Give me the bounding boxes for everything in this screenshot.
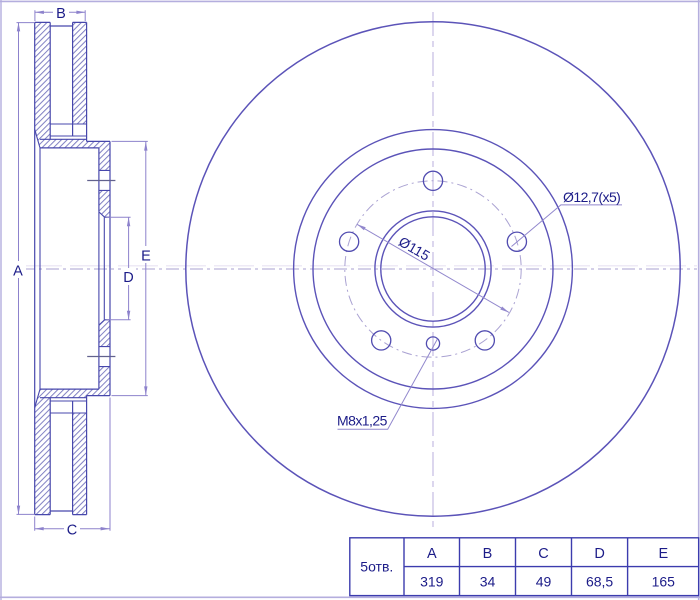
svg-text:D: D — [594, 546, 604, 562]
svg-text:68,5: 68,5 — [586, 574, 613, 590]
svg-text:A: A — [427, 546, 437, 562]
svg-text:B: B — [56, 6, 66, 22]
svg-text:319: 319 — [420, 574, 444, 590]
svg-text:C: C — [67, 523, 77, 539]
svg-text:165: 165 — [652, 574, 676, 590]
svg-text:A: A — [13, 264, 23, 280]
svg-text:34: 34 — [480, 574, 496, 590]
svg-text:D: D — [123, 270, 133, 286]
svg-text:5отв.: 5отв. — [360, 559, 393, 575]
svg-text:E: E — [141, 249, 151, 265]
svg-text:49: 49 — [536, 574, 552, 590]
svg-text:C: C — [538, 546, 548, 562]
svg-text:E: E — [658, 546, 668, 562]
svg-text:B: B — [483, 546, 493, 562]
svg-text:M8x1,25: M8x1,25 — [337, 413, 388, 429]
svg-text:Ø12,7(x5): Ø12,7(x5) — [563, 189, 620, 205]
